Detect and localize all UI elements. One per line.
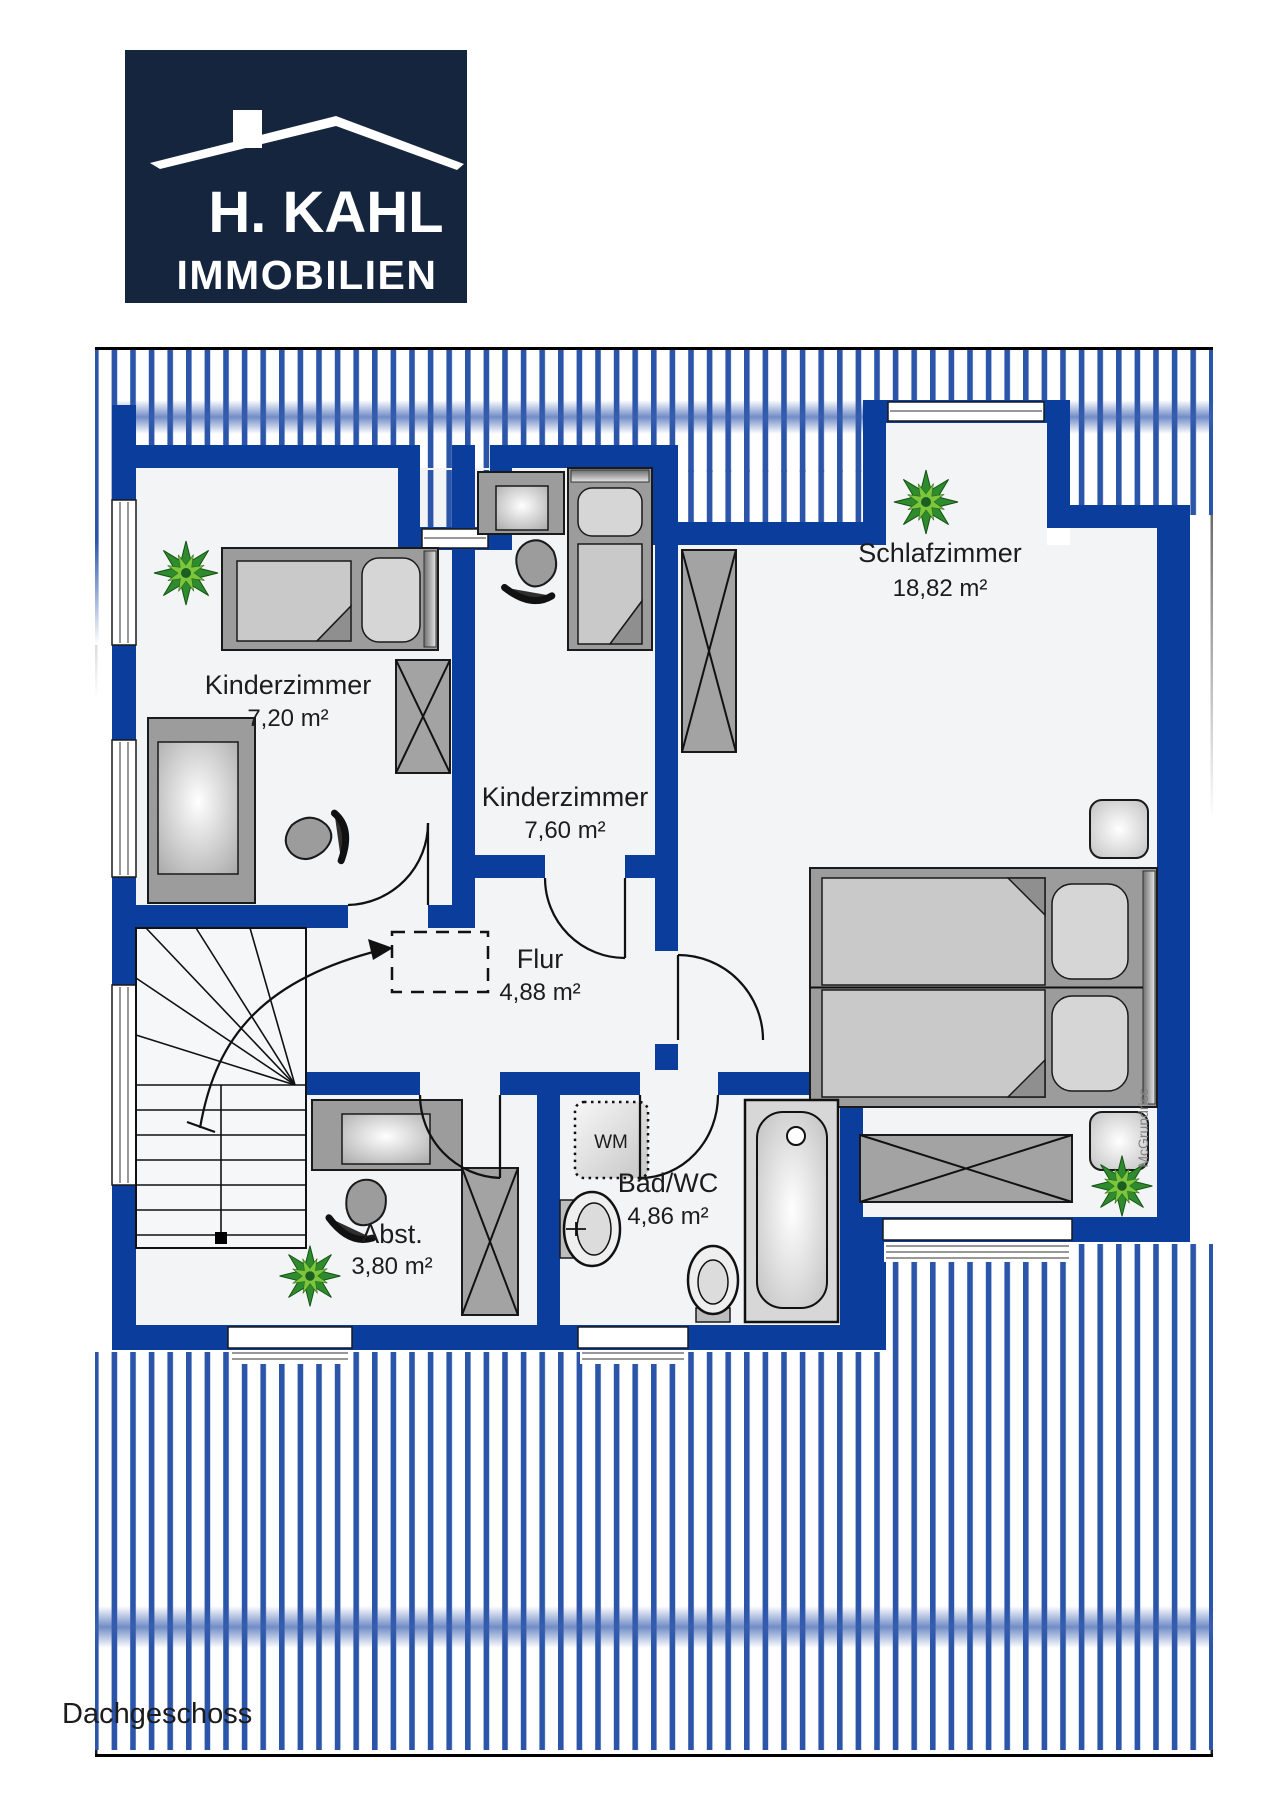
window-left-3 bbox=[112, 985, 136, 1185]
window-bottom-1 bbox=[228, 1327, 352, 1364]
single-bed-icon bbox=[568, 468, 652, 650]
wall-top-2 bbox=[490, 445, 655, 468]
room-label: Schlafzimmer bbox=[858, 538, 1022, 568]
schlafzimmer-east-floor bbox=[1070, 528, 1157, 545]
watermark: McGrundriss bbox=[1135, 1088, 1151, 1167]
wall-divider-kids bbox=[452, 445, 475, 928]
window-bottom-2 bbox=[578, 1327, 688, 1364]
room-label: Abst. bbox=[361, 1219, 423, 1249]
room-label: Kinderzimmer bbox=[205, 670, 372, 700]
gradient-band-bottom bbox=[95, 1606, 1213, 1648]
desk-icon bbox=[312, 1100, 462, 1170]
window-schlafzimmer-south bbox=[883, 1219, 1072, 1262]
room-area-label: 7,60 m² bbox=[524, 817, 605, 844]
sink-icon bbox=[560, 1192, 620, 1266]
plant-icon bbox=[894, 470, 958, 534]
floor-title: Dachgeschoss bbox=[62, 1698, 252, 1730]
flur-upper-floor bbox=[475, 878, 655, 928]
washing-machine-label: WM bbox=[594, 1132, 628, 1153]
wardrobe-icon bbox=[682, 550, 736, 752]
window-left-2 bbox=[112, 740, 136, 877]
floorplan-canvas: H. KAHL IMMOBILIEN bbox=[0, 0, 1280, 1811]
wall-right bbox=[1157, 505, 1190, 1242]
company-logo: H. KAHL IMMOBILIEN bbox=[125, 50, 467, 303]
toilet-icon bbox=[688, 1246, 738, 1322]
desk-icon bbox=[148, 718, 255, 903]
double-bed-icon bbox=[810, 868, 1157, 1107]
wall-flur-south bbox=[306, 1072, 863, 1095]
window-left-1 bbox=[112, 500, 136, 645]
room-label: Bad/WC bbox=[618, 1168, 719, 1198]
room-area-label: 3,80 m² bbox=[351, 1253, 432, 1280]
bathtub-icon bbox=[745, 1100, 838, 1322]
logo-subtitle: IMMOBILIEN bbox=[177, 252, 438, 298]
stair-newel bbox=[215, 1232, 227, 1244]
desk-icon bbox=[478, 472, 564, 534]
room-label: Kinderzimmer bbox=[482, 782, 649, 812]
room-area-label: 18,82 m² bbox=[893, 575, 988, 602]
room-area-label: 4,88 m² bbox=[499, 979, 580, 1006]
wall-divider-abst-bad bbox=[537, 1095, 560, 1325]
single-bed-icon bbox=[222, 548, 438, 650]
floorplan-page: H. KAHL IMMOBILIEN bbox=[0, 0, 1280, 1811]
plant-icon bbox=[280, 1246, 341, 1307]
wall-bad-east bbox=[840, 1095, 863, 1325]
dresser-icon bbox=[860, 1135, 1072, 1202]
room-area-label: 4,86 m² bbox=[627, 1203, 708, 1230]
room-label: Flur bbox=[517, 944, 564, 974]
logo-title: H. KAHL bbox=[208, 180, 443, 245]
cabinet-icon bbox=[462, 1168, 518, 1315]
window-dormer-schlafzimmer bbox=[888, 402, 1044, 421]
nightstand-icon bbox=[1090, 800, 1148, 858]
plant-icon bbox=[154, 541, 218, 605]
room-area-label: 7,20 m² bbox=[247, 705, 328, 732]
washing-machine-icon: WM bbox=[575, 1102, 648, 1178]
wall-top-1 bbox=[112, 445, 420, 468]
wardrobe-icon bbox=[396, 660, 450, 773]
